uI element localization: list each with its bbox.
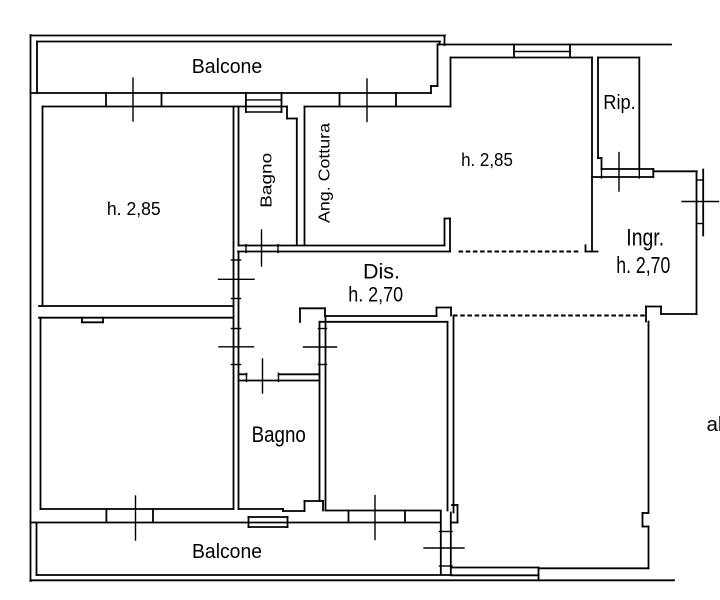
svg-text:h. 2,85: h. 2,85 (461, 150, 513, 170)
svg-text:Balcone: Balcone (192, 55, 263, 78)
svg-text:h. 2,70: h. 2,70 (616, 252, 670, 278)
svg-text:Bagno: Bagno (252, 422, 306, 447)
svg-text:Rip.: Rip. (603, 91, 636, 114)
svg-text:Ingr.: Ingr. (626, 224, 664, 251)
svg-text:h. 2,85: h. 2,85 (107, 199, 161, 219)
svg-text:Bagno: Bagno (259, 152, 276, 207)
svg-text:Dis.: Dis. (363, 261, 400, 284)
svg-text:h. 2,70: h. 2,70 (348, 281, 403, 306)
svg-text:al: al (707, 413, 720, 436)
svg-text:Balcone: Balcone (192, 540, 262, 563)
svg-text:Ang. Cottura: Ang. Cottura (317, 123, 334, 223)
